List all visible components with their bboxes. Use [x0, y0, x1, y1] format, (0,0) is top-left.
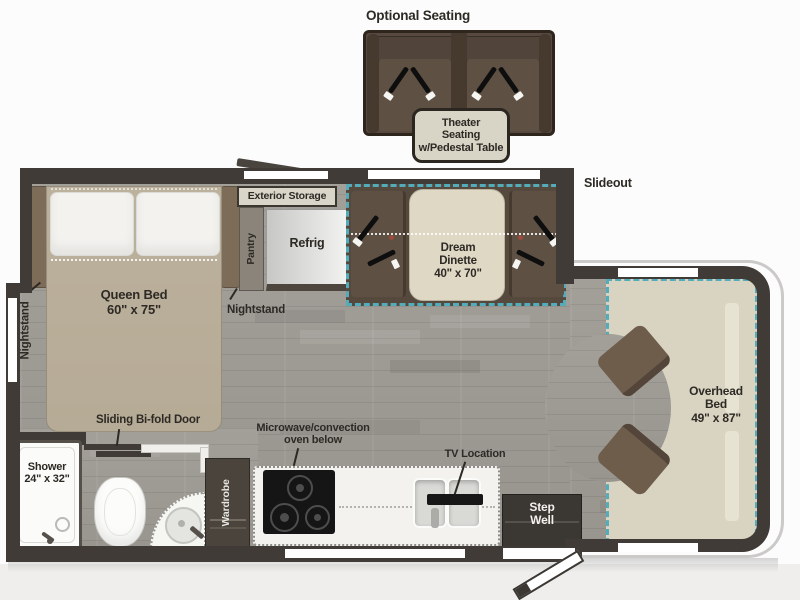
window-rear-wall [8, 298, 17, 382]
nightstand-left-label: Nightstand [20, 290, 33, 370]
slideout-label: Slideout [584, 176, 654, 190]
toilet [94, 477, 146, 547]
pantry-label: Pantry [246, 214, 258, 284]
queen-bed-label-line: Queen Bed [64, 288, 204, 303]
dinette-label: Dream Dinette 40" x 70" [413, 242, 503, 281]
wardrobe-cabinet: Wardrobe [205, 458, 250, 550]
dinette-label-line: Dinette [413, 255, 503, 268]
dinette-label-line: Dream [413, 242, 503, 255]
bed-blanket-seam [51, 188, 217, 190]
shower-label-line: 24" x 32" [15, 473, 79, 485]
theater-armrest-right [539, 34, 551, 133]
theater-backrest-left [376, 36, 456, 61]
shower-label: Shower 24" x 32" [15, 461, 79, 486]
kitchen-faucet [431, 508, 439, 528]
bifold-door-label: Sliding Bi-fold Door [92, 414, 204, 427]
window-kitchen-wall [285, 549, 465, 558]
theater-tag-line: Theater [415, 117, 507, 129]
cooktop-burner [270, 503, 299, 532]
seatbelt-buckle [518, 235, 523, 240]
rv-floorplan-canvas: Optional Seating Theater Seating w/Pedes… [0, 0, 800, 600]
bifold-door-panel [84, 444, 142, 450]
bed-pillow-left [50, 192, 134, 256]
cab-window-top [618, 268, 698, 277]
shower: Shower 24" x 32" [12, 440, 82, 550]
theater-seating-tag: Theater Seating w/Pedestal Table [412, 108, 510, 163]
microwave-label-line: oven below [250, 434, 376, 446]
shower-faucet [47, 538, 53, 544]
vanity-partition-wall [141, 444, 209, 453]
floor-plank [390, 360, 480, 373]
slideout-travel-line [351, 233, 561, 235]
window-above-dinette [368, 170, 540, 179]
theater-tag-line: Seating [415, 129, 507, 141]
shower-drain [55, 517, 70, 532]
shower-label-line: Shower [15, 461, 79, 473]
refrig-label: Refrig [267, 236, 347, 250]
kitchen-counter [253, 466, 500, 546]
cooktop-burner [305, 505, 330, 530]
microwave-label-line: Microwave/convection [250, 422, 376, 434]
cooktop-burner [287, 475, 313, 501]
tv-location-marker [427, 494, 483, 505]
theater-backrest-right [463, 36, 543, 61]
exterior-storage-label: Exterior Storage [248, 191, 327, 203]
exterior-storage-door-opening [244, 171, 328, 179]
cooktop [263, 470, 335, 534]
cab-walls [565, 266, 770, 552]
optional-seating-heading: Optional Seating [366, 8, 496, 23]
toilet-seat-line [104, 488, 136, 536]
bed-blanket-seam [51, 259, 217, 261]
pantry-cabinet: Pantry [239, 207, 264, 291]
wall-left-upper [20, 168, 32, 293]
seatbelt-buckle [389, 235, 394, 240]
theater-armrest-left [367, 34, 379, 133]
floor-plank [430, 315, 530, 328]
sink-drain [178, 520, 185, 527]
exterior-storage-bar: Exterior Storage [237, 186, 337, 207]
queen-bed-label-line: 60" x 75" [64, 303, 204, 318]
bed-pillow-right [136, 192, 220, 256]
microwave-label: Microwave/convection oven below [250, 422, 376, 447]
refrigerator: Refrig [266, 209, 348, 291]
theater-tag-line: w/Pedestal Table [415, 142, 507, 154]
tv-location-label: TV Location [444, 448, 506, 460]
dinette-label-line: 40" x 70" [413, 268, 503, 281]
wardrobe-label: Wardrobe [221, 463, 233, 543]
cab-window-bottom [618, 543, 698, 552]
floor-plank [300, 330, 420, 344]
nightstand-right-label: Nightstand [224, 304, 288, 317]
queen-bed-label: Queen Bed 60" x 75" [64, 288, 204, 317]
